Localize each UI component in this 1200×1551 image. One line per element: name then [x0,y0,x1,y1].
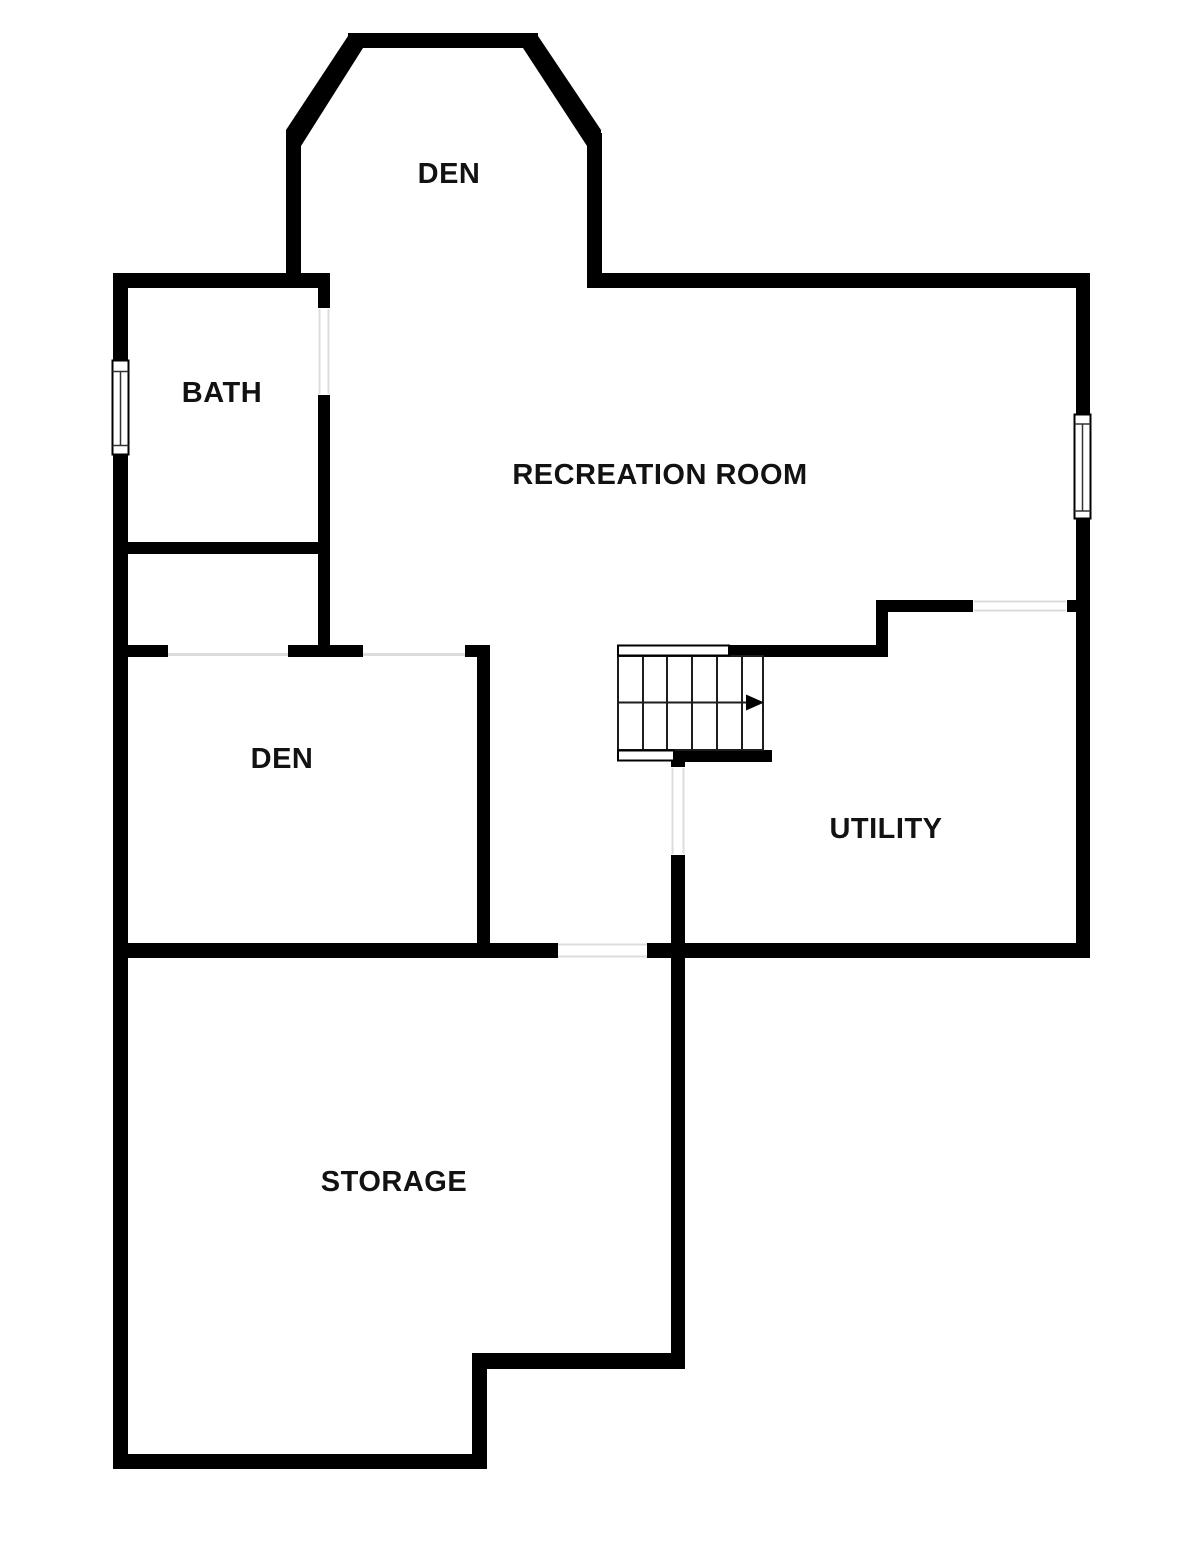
room-label-recreation-room: RECREATION ROOM [512,459,807,491]
room-label-storage: STORAGE [321,1166,467,1198]
floor-plan-page: DEN BATH RECREATION ROOM DEN UTILITY STO… [0,0,1200,1551]
room-label-den-top: DEN [418,158,481,190]
window-recreation [1075,415,1091,519]
floor-plan-canvas: DEN BATH RECREATION ROOM DEN UTILITY STO… [0,0,1200,1551]
room-label-bath: BATH [182,377,262,409]
room-label-utility: UTILITY [829,813,942,845]
window-bath [113,361,129,455]
stair-top-rail [618,646,729,656]
stair-bottom-rail [618,751,674,761]
staircase [618,646,764,761]
room-label-den-lower: DEN [251,743,314,775]
